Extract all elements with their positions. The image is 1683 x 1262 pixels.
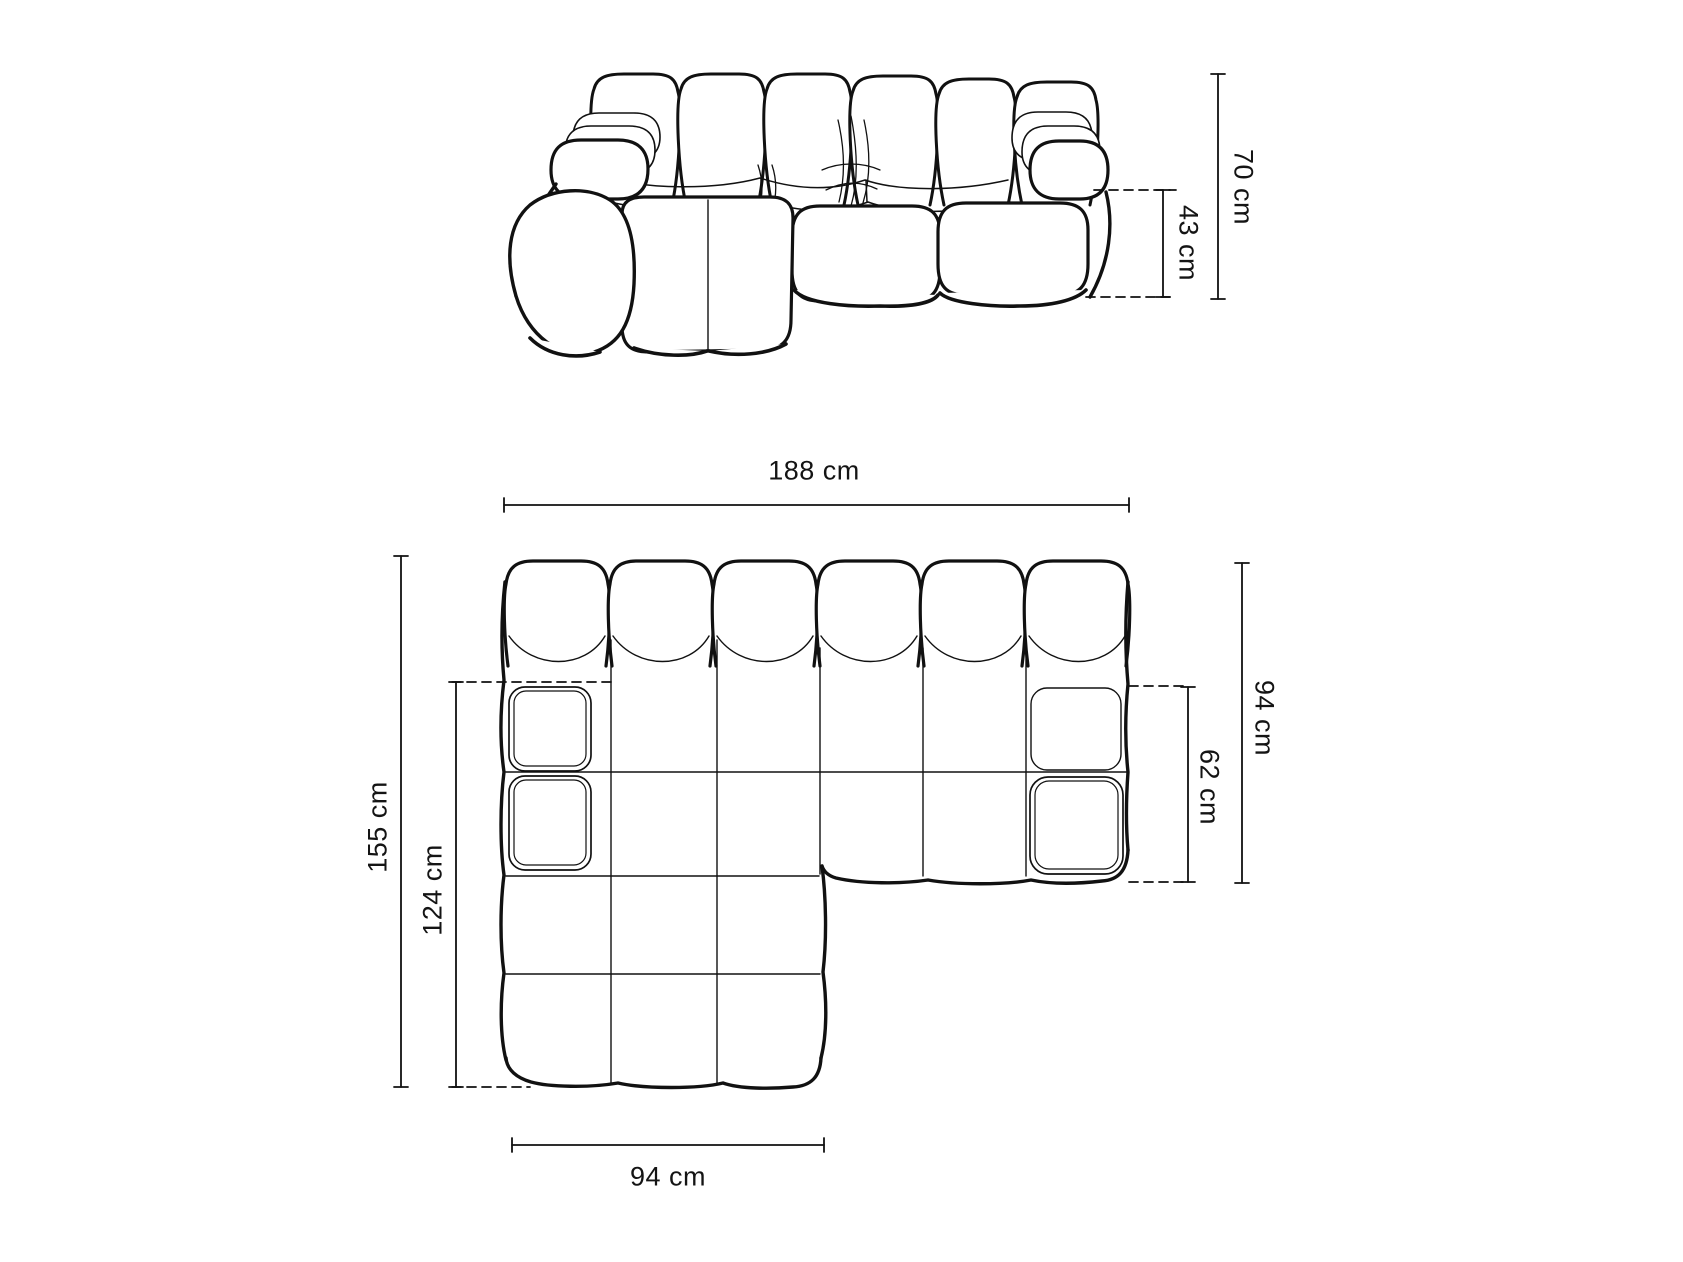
dim-label-chaise-width: 94 cm (630, 1162, 706, 1193)
dim-label-depth-right: 94 cm (1249, 680, 1280, 756)
front-view-right-seat-cushions (792, 203, 1088, 306)
dim-label-seat-depth: 62 cm (1194, 749, 1225, 825)
sofa-dimension-diagram: 70 cm 43 cm 188 cm 94 cm 62 cm 155 cm 12… (0, 0, 1683, 1262)
front-view-dimension-lines (1086, 74, 1225, 299)
front-view-chaise (510, 191, 793, 356)
plan-right-front-edge (822, 850, 1128, 884)
dim-label-seat-height: 43 cm (1173, 205, 1204, 281)
plan-view-seams (506, 640, 1127, 1083)
dim-label-height-total: 70 cm (1228, 149, 1259, 225)
plan-view-armrest-pads (509, 687, 1123, 874)
sofa-line-art (0, 0, 1683, 1262)
dim-label-depth-total: 155 cm (363, 781, 394, 873)
plan-chaise-right-edge (821, 866, 826, 1058)
dim-label-width-total: 188 cm (768, 456, 860, 487)
dim-label-chaise-length: 124 cm (418, 844, 449, 936)
plan-view-back-cushions (504, 561, 1129, 666)
plan-chaise-bottom-edge (506, 1058, 821, 1088)
